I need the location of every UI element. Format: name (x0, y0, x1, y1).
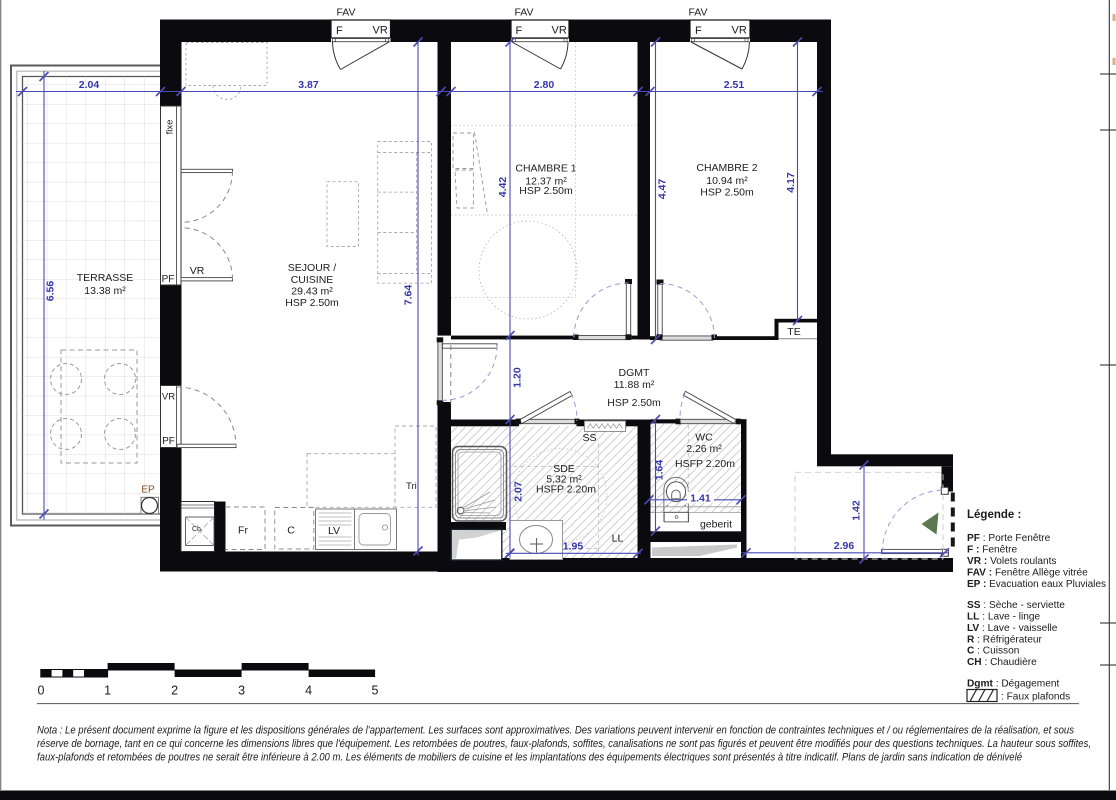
svg-text:SEJOUR /: SEJOUR / (288, 262, 337, 274)
svg-text:VR : Volets roulants: VR : Volets roulants (967, 556, 1056, 567)
svg-text:WC: WC (695, 432, 713, 444)
svg-text:: Faux plafonds: : Faux plafonds (1001, 692, 1070, 703)
svg-text:EP: EP (141, 485, 155, 496)
svg-text:VR: VR (373, 25, 388, 37)
svg-text:4.47: 4.47 (657, 179, 669, 200)
svg-text:Dgmt : Dégagement: Dgmt : Dégagement (967, 679, 1059, 690)
svg-text:HSP 2.50m: HSP 2.50m (285, 297, 339, 309)
svg-text:FAV: FAV (688, 7, 707, 19)
svg-text:F: F (695, 25, 702, 37)
svg-text:LL: LL (612, 533, 624, 545)
svg-text:29.43 m²: 29.43 m² (291, 286, 333, 298)
svg-text:Tri: Tri (406, 481, 417, 492)
svg-text:2.96: 2.96 (834, 540, 855, 552)
svg-text:CH : Chaudière: CH : Chaudière (967, 657, 1037, 668)
svg-text:faux-plafonds et retombées de: faux-plafonds et retombées de poutres ne… (37, 752, 1022, 764)
svg-text:2.26 m²: 2.26 m² (686, 443, 722, 455)
svg-text:FAV : Fenêtre Allège vitrée: FAV : Fenêtre Allège vitrée (967, 568, 1088, 579)
svg-text:4: 4 (305, 684, 312, 698)
svg-text:2.07: 2.07 (513, 481, 525, 502)
svg-text:1.64: 1.64 (654, 460, 666, 481)
svg-text:PF: PF (162, 436, 175, 447)
svg-text:FAV: FAV (336, 7, 355, 19)
svg-text:SS : Sèche - serviette: SS : Sèche - serviette (967, 600, 1065, 611)
svg-text:LL : Lave - linge: LL : Lave - linge (967, 612, 1041, 623)
svg-text:DGMT: DGMT (619, 367, 650, 379)
svg-text:7.64: 7.64 (403, 285, 415, 306)
svg-text:C: C (287, 525, 295, 537)
svg-text:geberit: geberit (700, 519, 732, 531)
svg-text:2: 2 (171, 684, 178, 698)
svg-text:CUISINE: CUISINE (291, 274, 334, 286)
svg-text:F : Fenêtre: F : Fenêtre (967, 545, 1017, 556)
svg-text:6.56: 6.56 (45, 281, 57, 302)
svg-text:13.38 m²: 13.38 m² (84, 285, 126, 297)
svg-text:2.80: 2.80 (534, 79, 555, 91)
svg-text:PF : Porte Fenêtre: PF : Porte Fenêtre (967, 533, 1051, 544)
svg-text:3: 3 (238, 684, 245, 698)
svg-text:F: F (336, 25, 343, 37)
svg-text:fixe: fixe (165, 120, 176, 135)
svg-text:4.42: 4.42 (497, 177, 509, 198)
svg-text:SS: SS (582, 432, 596, 444)
svg-text:Nota : Le présent document exp: Nota : Le présent document exprime la fi… (37, 725, 1075, 737)
svg-text:HSP 2.50m: HSP 2.50m (700, 187, 754, 199)
svg-text:3.87: 3.87 (298, 79, 319, 91)
svg-text:CHAMBRE 2: CHAMBRE 2 (696, 162, 757, 174)
svg-text:CHAMBRE 1: CHAMBRE 1 (515, 163, 576, 175)
svg-text:TE: TE (787, 326, 800, 338)
svg-text:C : Cuisson: C : Cuisson (967, 646, 1019, 657)
svg-text:R : Réfrigérateur: R : Réfrigérateur (967, 635, 1042, 646)
svg-text:VR: VR (552, 25, 567, 37)
svg-text:VR: VR (732, 25, 747, 37)
svg-text:réserve de bornage, tant en ce: réserve de bornage, tant en ce qui conce… (37, 738, 1091, 750)
svg-text:2.04: 2.04 (79, 79, 100, 91)
svg-text:HSFP 2.20m: HSFP 2.20m (536, 484, 596, 496)
svg-text:1.95: 1.95 (563, 541, 584, 553)
svg-text:LV: LV (328, 525, 340, 537)
svg-text:4.17: 4.17 (785, 172, 797, 193)
svg-text:Ch.: Ch. (192, 526, 203, 533)
svg-text:1.20: 1.20 (512, 367, 524, 388)
svg-text:VR: VR (162, 392, 175, 403)
svg-text:Légende :: Légende : (967, 509, 1021, 521)
svg-text:1.41: 1.41 (690, 493, 711, 505)
svg-text:Fr: Fr (238, 525, 248, 537)
svg-text:TERRASSE: TERRASSE (77, 272, 134, 284)
svg-text:HSFP 2.20m: HSFP 2.20m (675, 458, 735, 470)
svg-text:FAV: FAV (514, 7, 533, 19)
svg-text:PF: PF (162, 274, 175, 285)
svg-text:1: 1 (104, 684, 111, 698)
svg-text:LV : Lave - vaisselle: LV : Lave - vaisselle (967, 623, 1058, 634)
svg-text:2.51: 2.51 (724, 79, 745, 91)
svg-text:VR: VR (190, 265, 205, 277)
svg-text:11.88 m²: 11.88 m² (614, 379, 655, 391)
svg-text:HSP 2.50m: HSP 2.50m (519, 185, 573, 197)
svg-text:EP : Evacuation eaux Pluviales: EP : Evacuation eaux Pluviales (967, 579, 1106, 590)
svg-text:F: F (516, 25, 523, 37)
svg-text:10.94 m²: 10.94 m² (706, 175, 748, 187)
svg-text:0: 0 (38, 684, 45, 698)
svg-text:5: 5 (372, 684, 379, 698)
svg-text:1.42: 1.42 (851, 500, 863, 521)
svg-text:HSP 2.50m: HSP 2.50m (607, 397, 661, 409)
